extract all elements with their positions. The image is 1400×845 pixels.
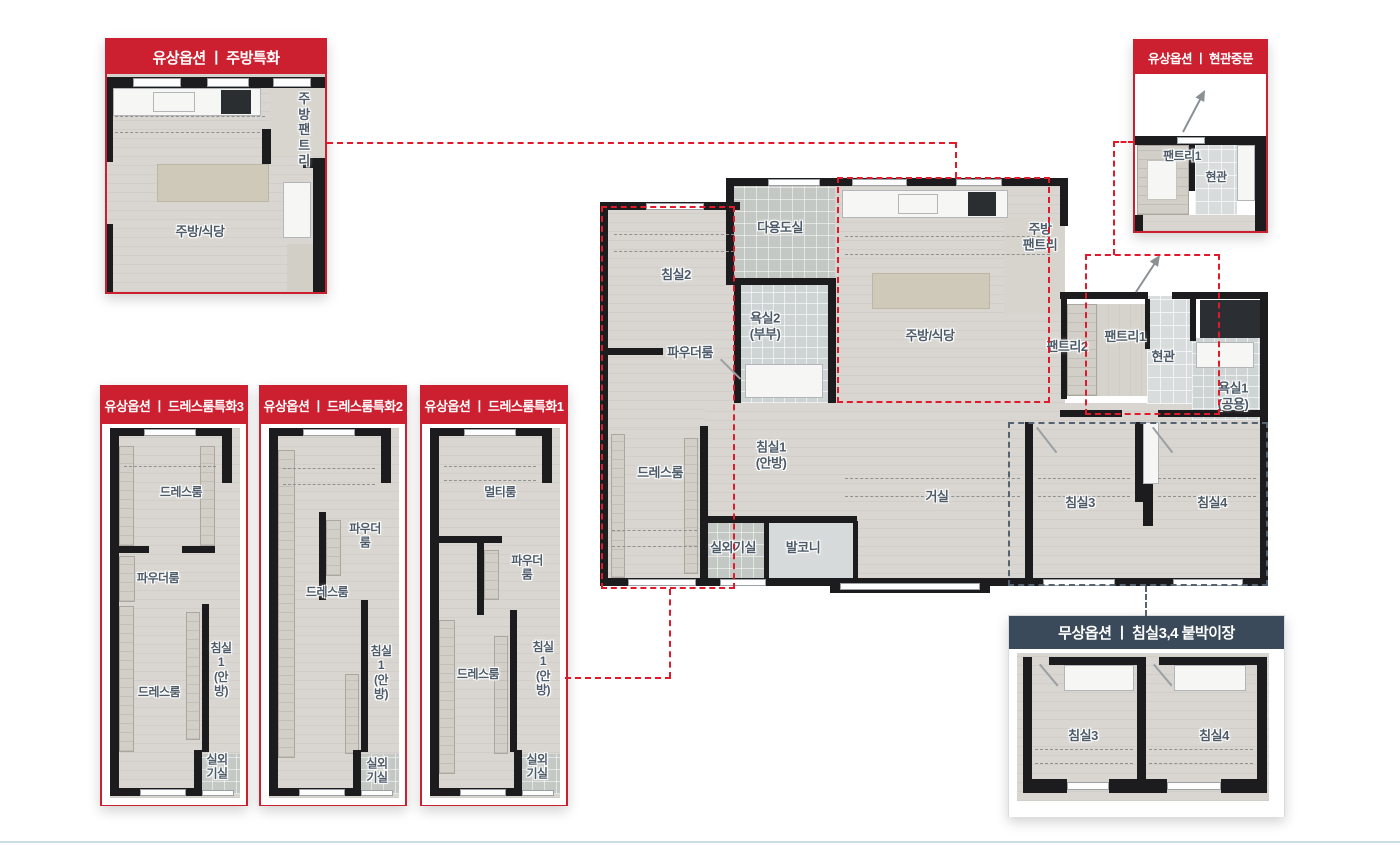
wall xyxy=(381,428,391,483)
wall xyxy=(734,285,741,403)
wall xyxy=(1060,178,1068,226)
wall xyxy=(1221,779,1267,793)
ceiling-dash xyxy=(845,478,1020,479)
dressroom-option-panel-2: 유상옵션 ㅣ 드레스룸특화2 파우더룸 드레스룸 침실1 (안방) 실외기실 xyxy=(259,385,407,806)
wall xyxy=(514,750,522,796)
ceiling-dash xyxy=(444,466,536,467)
option-area-outline-dressroom xyxy=(601,206,735,589)
ceiling-dash xyxy=(1035,749,1133,750)
closet xyxy=(119,556,135,602)
free-option-plan: 침실3 침실4 xyxy=(1009,649,1284,817)
closet xyxy=(345,674,359,754)
window xyxy=(1167,782,1221,790)
wall xyxy=(119,546,149,553)
window xyxy=(768,179,820,186)
dressroom1-plan: 멀티룸 파우더룸 드레스룸 침실1 (안방) 실외기실 xyxy=(422,424,566,805)
option-area-outline-kitchen xyxy=(837,177,1050,403)
window xyxy=(133,78,181,87)
kitchen-island xyxy=(157,164,269,202)
leader-line-dressroom-h xyxy=(565,677,671,679)
window xyxy=(1067,782,1109,790)
wall xyxy=(828,285,836,403)
wall xyxy=(222,428,232,483)
wall xyxy=(542,428,552,483)
dressroom1-title: 유상옵션 ㅣ 드레스룸특화1 xyxy=(424,396,563,415)
window xyxy=(303,429,355,436)
kitchen-sink xyxy=(153,92,195,112)
closet xyxy=(119,606,134,752)
wall xyxy=(853,521,858,581)
window xyxy=(840,583,980,590)
entrance-option-header: 유상옵션 ㅣ 현관중문 xyxy=(1135,41,1266,74)
bathtub xyxy=(745,364,823,398)
window xyxy=(144,429,196,436)
window xyxy=(273,78,311,87)
wall xyxy=(353,750,361,796)
closet xyxy=(326,520,341,576)
wall xyxy=(303,158,325,168)
ceiling-dash xyxy=(1149,763,1253,764)
closet xyxy=(494,636,508,754)
window xyxy=(202,790,234,796)
window xyxy=(522,790,554,796)
wall xyxy=(194,750,202,796)
ceiling-dash xyxy=(283,484,375,485)
kitchen-option-header: 유상옵션 ㅣ 주방특화 xyxy=(107,40,325,74)
free-option-header: 무상옵션 ㅣ 침실3,4 붙박이장 xyxy=(1009,616,1284,649)
dressroom-option-panel-3: 유상옵션 ㅣ 드레스룸특화3 드레스룸 파우더룸 침실1 (안방) xyxy=(100,385,248,806)
dressroom2-header: 유상옵션 ㅣ 드레스룸특화2 xyxy=(261,387,405,424)
closet xyxy=(119,446,134,546)
ceiling-dash xyxy=(1149,749,1253,750)
ac-room-floor xyxy=(359,754,399,794)
wall xyxy=(1257,657,1267,787)
wall xyxy=(319,512,326,600)
free-option-title: 무상옵션 ㅣ 침실3,4 붙박이장 xyxy=(1058,622,1235,643)
window xyxy=(207,78,249,87)
free-option-panel: 무상옵션 ㅣ 침실3,4 붙박이장 침실3 침실4 xyxy=(1008,615,1285,817)
closet xyxy=(200,446,215,546)
ceiling-dash xyxy=(124,466,216,467)
ceiling-dash xyxy=(115,116,265,117)
wall xyxy=(1061,299,1067,399)
window xyxy=(460,789,506,796)
built-in-closet-bed3 xyxy=(1064,665,1134,691)
built-in-closet-bed4 xyxy=(1174,665,1246,691)
window xyxy=(464,429,516,436)
ceiling-dash xyxy=(115,132,265,133)
closet xyxy=(278,450,295,758)
kitchen-option-plan: 주방 팬트리 주방/식당 xyxy=(107,74,325,292)
wall xyxy=(510,610,517,752)
window xyxy=(361,790,393,796)
ac-room-floor xyxy=(520,754,560,794)
ceiling-dash xyxy=(845,496,1020,497)
option-area-outline-entrance xyxy=(1085,254,1220,415)
wall xyxy=(1159,657,1265,665)
leader-line-dressroom-v xyxy=(669,589,671,678)
wall xyxy=(107,224,113,292)
option-area-outline-bedrooms34 xyxy=(1008,422,1268,586)
wall xyxy=(477,543,484,615)
leader-line-kitchen-v xyxy=(955,142,957,178)
ceiling-dash xyxy=(444,480,536,481)
wall xyxy=(1023,657,1032,787)
door-swing-arrow-icon xyxy=(1175,78,1221,136)
closet xyxy=(484,550,499,600)
wall xyxy=(764,521,769,581)
leader-line-entrance-v xyxy=(1113,141,1115,255)
ac-room-floor xyxy=(200,754,240,794)
closet xyxy=(283,182,311,238)
kitchen-pantry-floor xyxy=(270,86,325,156)
leader-line-free-option-v xyxy=(1145,586,1147,616)
wall xyxy=(313,168,325,292)
window xyxy=(140,789,186,796)
balcony-floor xyxy=(767,521,855,581)
wall xyxy=(430,536,502,543)
wall xyxy=(726,278,836,285)
floor-plan-options-page: 유상옵션 ㅣ 주방특화 주방 팬트리 주방/식당 xyxy=(0,0,1400,845)
wall xyxy=(269,428,278,796)
closet xyxy=(186,612,200,740)
wall xyxy=(202,604,209,752)
wall xyxy=(430,428,439,796)
dressroom3-plan: 드레스룸 파우더룸 침실1 (안방) 드레스룸 실외기실 xyxy=(102,424,246,805)
dressroom2-plan: 파우더룸 드레스룸 침실1 (안방) 실외기실 xyxy=(261,424,405,805)
dressroom-option-panel-1: 유상옵션 ㅣ 드레스룸특화1 멀티룸 파우더룸 드레스룸 침실1 (안방) xyxy=(420,385,568,806)
wall xyxy=(1023,779,1067,793)
wall xyxy=(1137,657,1146,787)
middle-door-gap xyxy=(1177,137,1205,144)
wall xyxy=(1049,657,1141,665)
kitchen-option-inset: 유상옵션 ㅣ 주방특화 주방 팬트리 주방/식당 xyxy=(105,38,327,294)
wall xyxy=(262,129,271,164)
window xyxy=(299,789,345,796)
entrance-option-title: 유상옵션 ㅣ 현관중문 xyxy=(1148,48,1253,67)
kitchen-option-title: 유상옵션 ㅣ 주방특화 xyxy=(152,47,279,68)
utility-floor xyxy=(732,182,835,284)
closet xyxy=(439,620,455,774)
dressroom1-header: 유상옵션 ㅣ 드레스룸특화1 xyxy=(422,387,566,424)
leader-line-kitchen-h xyxy=(327,142,955,144)
dressroom2-title: 유상옵션 ㅣ 드레스룸특화2 xyxy=(263,396,402,415)
leader-line-entrance-h xyxy=(1113,141,1134,143)
cooktop xyxy=(221,90,251,114)
ceiling-dash xyxy=(283,468,375,469)
wall xyxy=(361,600,368,752)
wall xyxy=(110,428,119,796)
ceiling-dash xyxy=(1035,763,1133,764)
wall xyxy=(182,546,215,553)
wall xyxy=(1109,779,1167,793)
dressroom3-title: 유상옵션 ㅣ 드레스룸특화3 xyxy=(104,396,243,415)
page-bottom-rule xyxy=(0,841,1400,843)
dressroom3-header: 유상옵션 ㅣ 드레스룸특화3 xyxy=(102,387,246,424)
